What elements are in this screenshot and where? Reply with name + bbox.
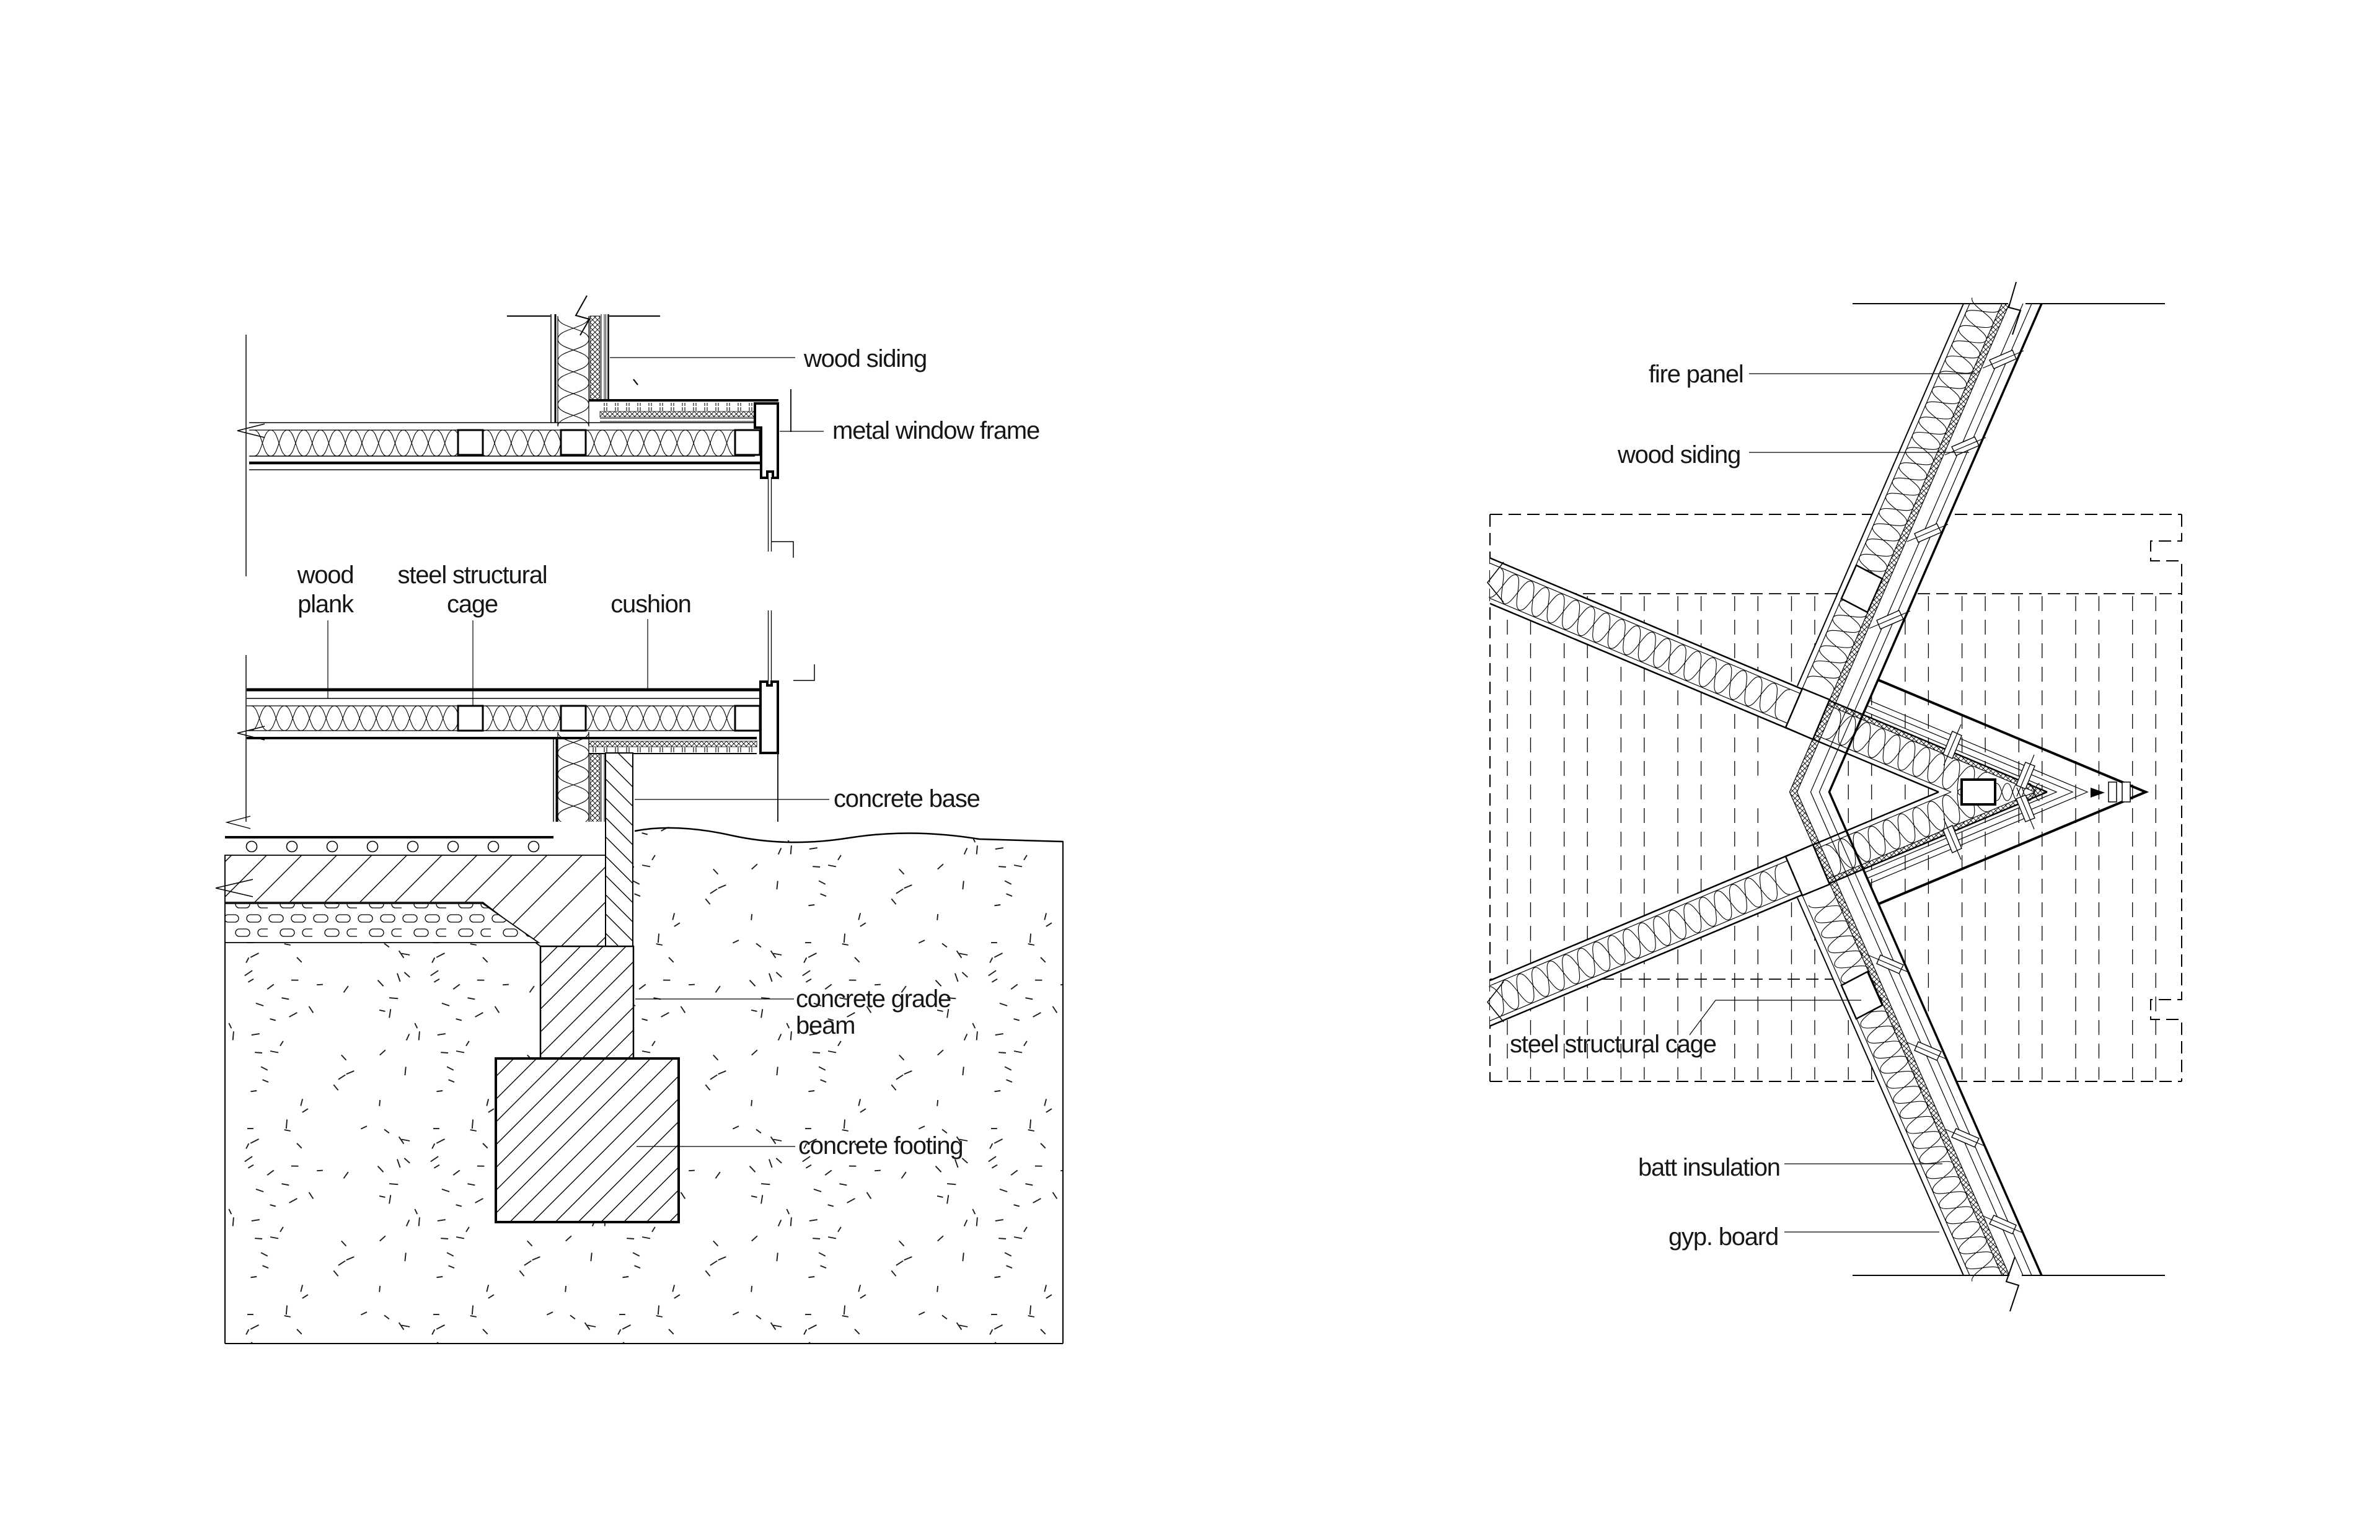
svg-text:wood: wood (297, 561, 354, 589)
svg-text:metal window frame: metal window frame (832, 417, 1039, 444)
svg-text:steel structural cage: steel structural cage (1510, 1031, 1716, 1058)
svg-text:steel structural: steel structural (398, 561, 547, 589)
svg-text:batt insulation: batt insulation (1638, 1154, 1780, 1181)
svg-text:cushion: cushion (610, 591, 690, 618)
svg-text:plank: plank (297, 591, 355, 618)
svg-text:fire panel: fire panel (1649, 361, 1743, 388)
svg-text:concrete base: concrete base (834, 785, 980, 812)
svg-text:concrete footing: concrete footing (798, 1132, 963, 1159)
svg-text:beam: beam (796, 1012, 855, 1039)
svg-text:gyp. board: gyp. board (1668, 1223, 1778, 1251)
svg-text:wood siding: wood siding (1617, 441, 1740, 469)
svg-text:cage: cage (447, 591, 498, 618)
svg-text:wood siding: wood siding (803, 345, 927, 372)
svg-text:concrete grade: concrete grade (796, 985, 951, 1013)
